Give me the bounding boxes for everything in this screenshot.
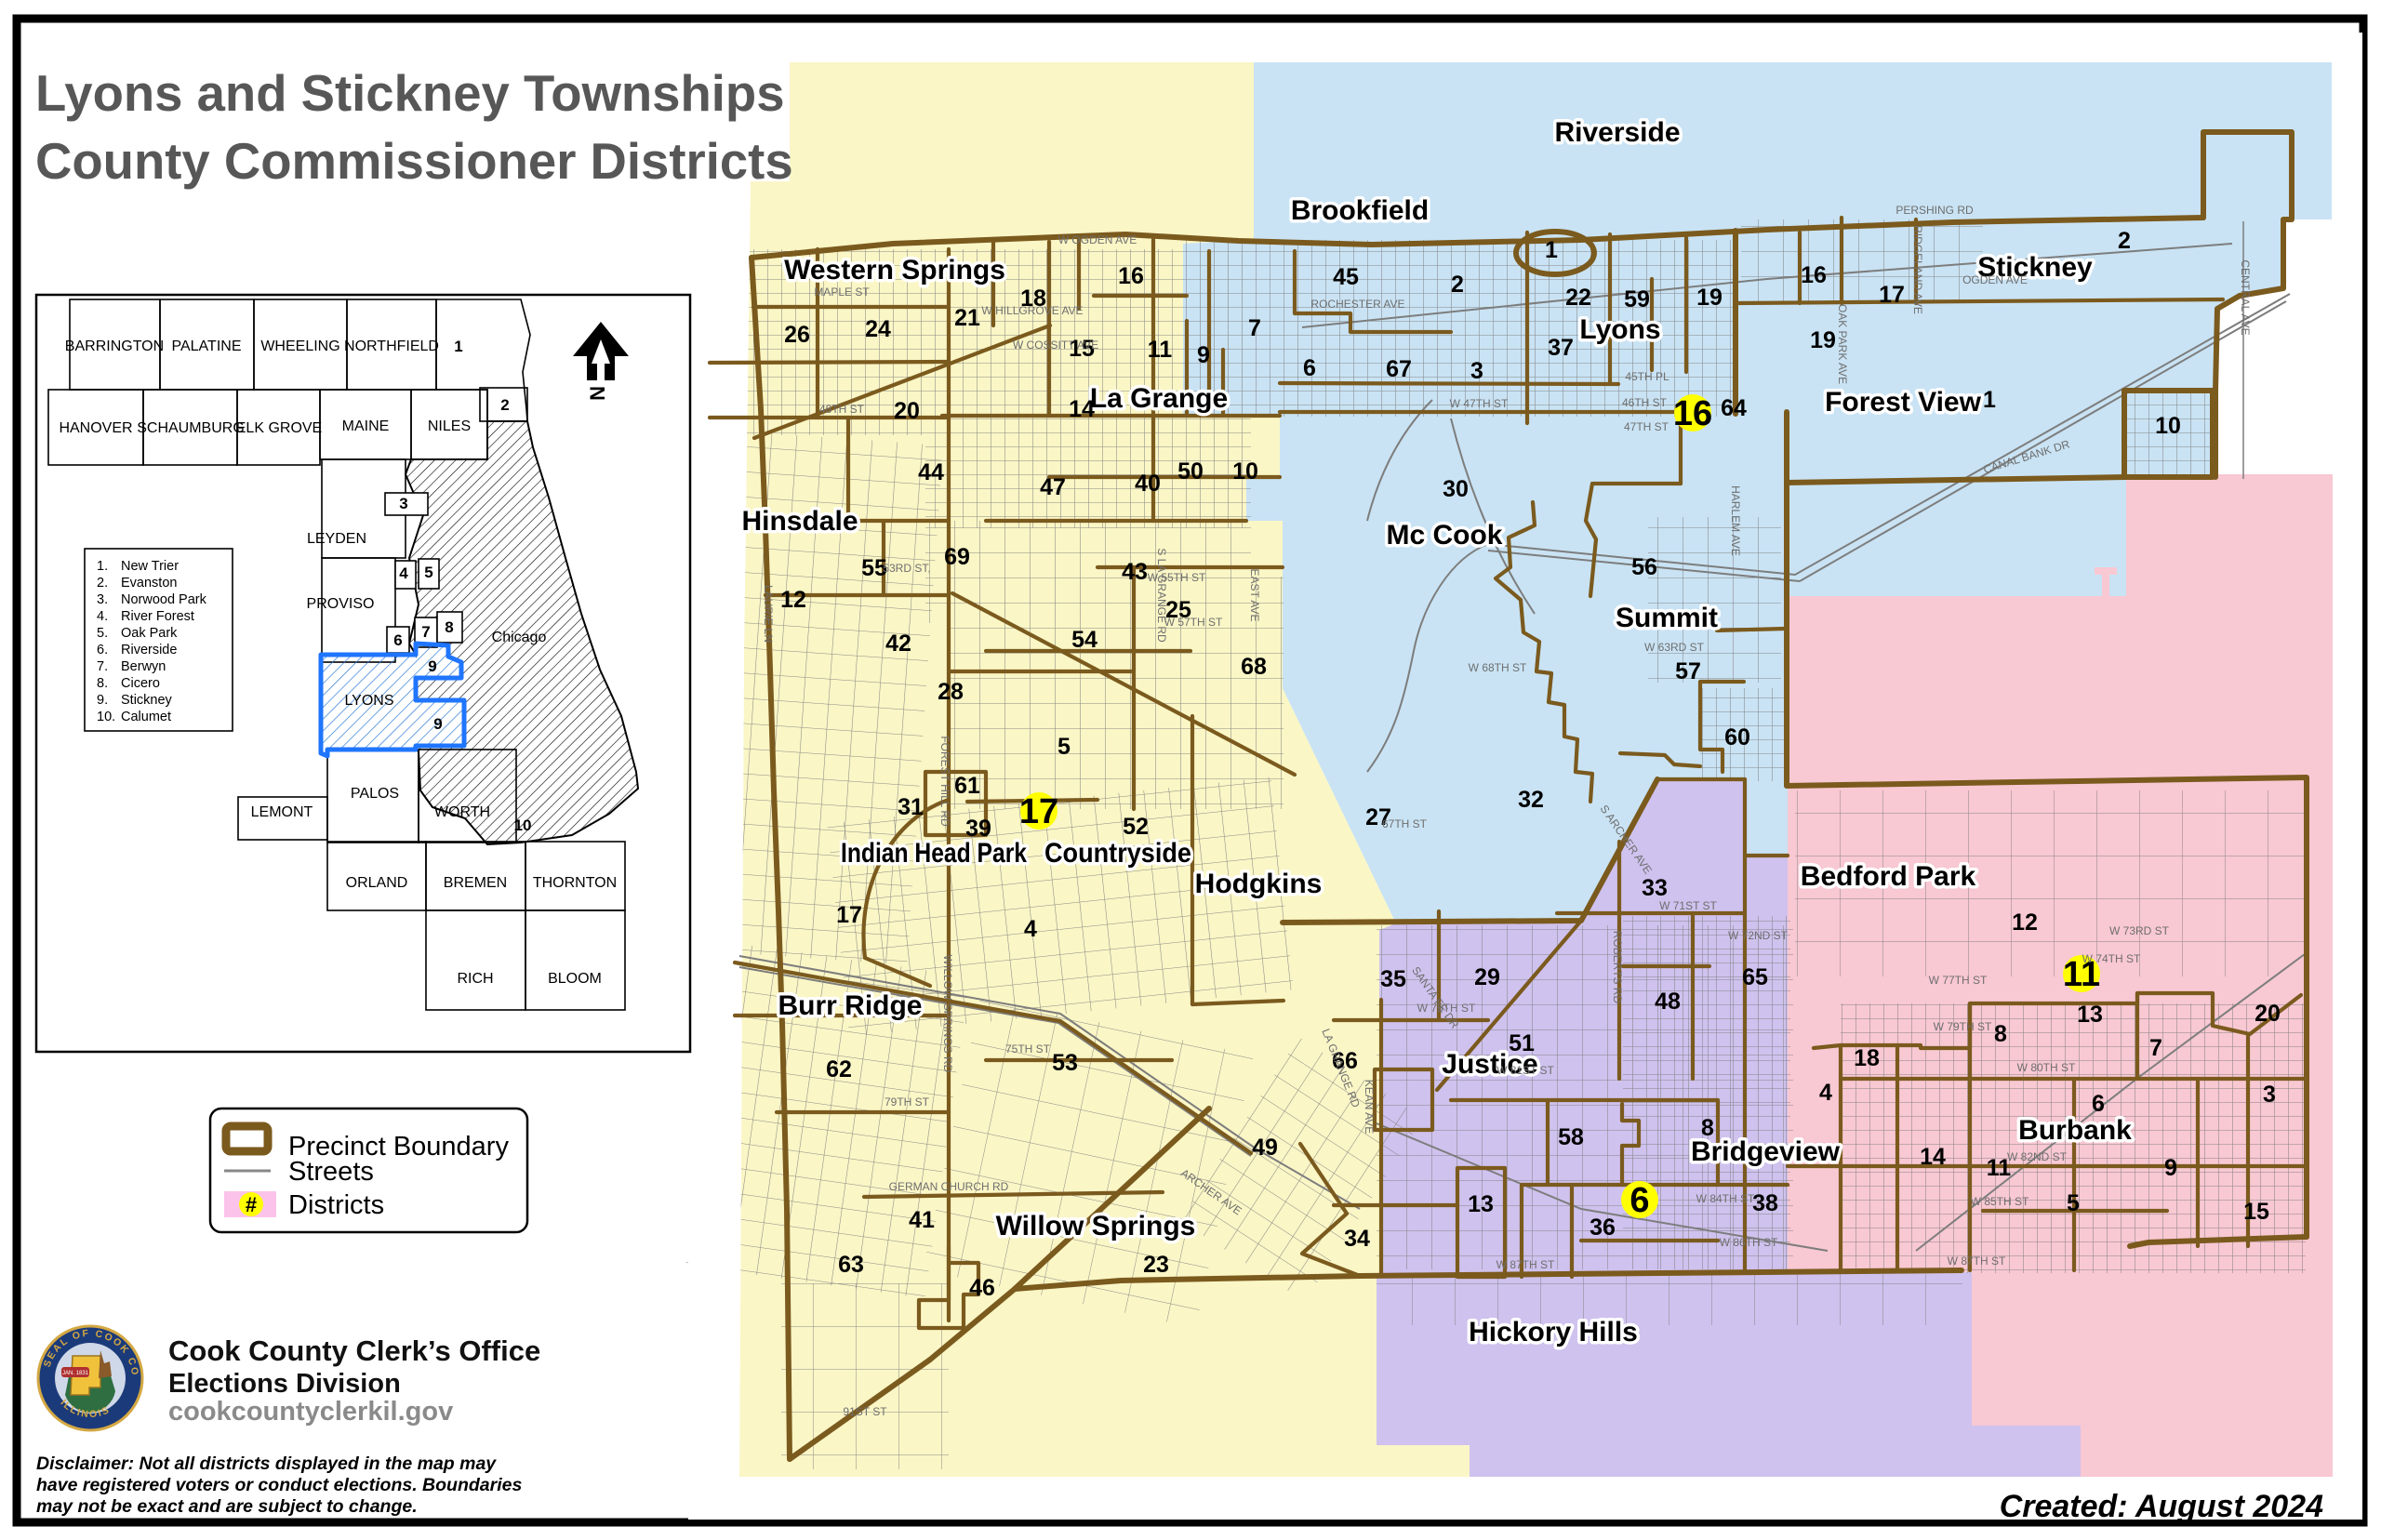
svg-text:3: 3	[399, 495, 407, 512]
svg-text:41: 41	[909, 1207, 935, 1233]
svg-text:3: 3	[1470, 358, 1483, 384]
svg-text:8.: 8.	[97, 676, 108, 691]
svg-text:FOREST HILL RD: FOREST HILL RD	[938, 736, 951, 827]
svg-text:Norwood Park: Norwood Park	[121, 592, 207, 607]
svg-text:LEYDEN: LEYDEN	[307, 531, 366, 547]
svg-text:BLOOM: BLOOM	[548, 971, 602, 987]
svg-text:Indian Head Park: Indian Head Park	[841, 838, 1027, 869]
svg-text:BREMEN: BREMEN	[444, 875, 507, 891]
svg-text:7.: 7.	[97, 659, 108, 674]
svg-text:59: 59	[1624, 286, 1650, 312]
svg-text:8: 8	[1701, 1115, 1714, 1141]
svg-text:W OGDEN AVE: W OGDEN AVE	[1058, 233, 1137, 246]
svg-text:CENTRAL AVE: CENTRAL AVE	[2239, 259, 2252, 335]
svg-text:7: 7	[2149, 1035, 2162, 1061]
svg-text:Elections Division: Elections Division	[168, 1369, 401, 1399]
svg-text:9: 9	[428, 657, 436, 675]
svg-text:KEAN AVE: KEAN AVE	[1363, 1080, 1376, 1134]
svg-text:47TH ST: 47TH ST	[1624, 420, 1669, 433]
svg-text:Chicago: Chicago	[492, 630, 547, 645]
svg-text:Disclaimer: Not all districts: Disclaimer: Not all districts displayed …	[36, 1454, 497, 1474]
svg-text:30: 30	[1443, 476, 1469, 502]
svg-text:LYONS: LYONS	[344, 693, 393, 709]
svg-text:20: 20	[2255, 1001, 2281, 1027]
svg-text:58: 58	[1558, 1124, 1584, 1150]
svg-text:NILES: NILES	[428, 418, 471, 434]
svg-text:W 68TH ST: W 68TH ST	[1469, 661, 1527, 674]
svg-text:4: 4	[1819, 1080, 1832, 1106]
svg-text:11: 11	[1148, 337, 1173, 363]
svg-text:Cook County Clerk’s Office: Cook County Clerk’s Office	[168, 1334, 540, 1367]
svg-text:Countryside: Countryside	[1044, 838, 1191, 869]
svg-text:17: 17	[1019, 792, 1058, 831]
svg-text:2.: 2.	[97, 576, 108, 591]
svg-text:43: 43	[1122, 559, 1148, 585]
svg-text:38: 38	[1752, 1190, 1778, 1216]
svg-text:44: 44	[918, 459, 944, 485]
svg-text:W COSSITT AVE: W COSSITT AVE	[1013, 339, 1098, 352]
svg-text:35: 35	[1380, 966, 1406, 992]
svg-text:34: 34	[1344, 1226, 1370, 1252]
svg-text:NORTHFIELD: NORTHFIELD	[344, 339, 439, 354]
svg-text:9: 9	[1197, 342, 1210, 368]
svg-text:45: 45	[1333, 264, 1359, 290]
svg-text:61: 61	[954, 773, 980, 799]
svg-text:Summit: Summit	[1616, 603, 1718, 633]
svg-text:Hinsdale: Hinsdale	[741, 506, 858, 537]
svg-text:W 47TH ST: W 47TH ST	[1450, 397, 1509, 410]
svg-text:Lyons: Lyons	[1579, 314, 1660, 345]
svg-text:9.: 9.	[97, 693, 108, 708]
svg-text:63: 63	[838, 1252, 864, 1278]
svg-text:47: 47	[1040, 474, 1066, 500]
svg-text:GERMAN CHURCH RD: GERMAN CHURCH RD	[889, 1180, 1009, 1193]
svg-text:14: 14	[1069, 396, 1095, 422]
svg-text:19: 19	[1810, 327, 1836, 353]
svg-text:BARRINGTON: BARRINGTON	[65, 339, 164, 354]
svg-text:LEMONT: LEMONT	[251, 804, 313, 820]
svg-text:57: 57	[1675, 658, 1701, 684]
svg-text:53: 53	[1052, 1050, 1078, 1076]
svg-text:Riverside: Riverside	[1554, 117, 1680, 148]
svg-text:48: 48	[1655, 989, 1681, 1015]
svg-text:Western Springs: Western Springs	[784, 255, 1005, 285]
svg-text:SCHAUMBURG: SCHAUMBURG	[137, 420, 245, 436]
svg-text:10.: 10.	[97, 710, 115, 724]
svg-text:20: 20	[894, 398, 920, 424]
svg-text:have registered voters or cond: have registered voters or conduct electi…	[36, 1475, 522, 1495]
svg-text:8: 8	[1994, 1021, 2007, 1047]
svg-text:4: 4	[1024, 916, 1037, 942]
svg-text:21: 21	[954, 305, 980, 331]
svg-text:Lyons and Stickney Townships: Lyons and Stickney Townships	[35, 65, 785, 122]
svg-text:W 87TH ST: W 87TH ST	[1948, 1255, 2006, 1268]
svg-text:1.: 1.	[97, 559, 108, 574]
svg-text:RIDGELAND AVE: RIDGELAND AVE	[1911, 225, 1924, 314]
svg-text:60: 60	[1724, 724, 1750, 750]
svg-text:W 81ST ST: W 81ST ST	[1496, 1064, 1554, 1077]
svg-text:cookcountyclerkil.gov: cookcountyclerkil.gov	[168, 1397, 453, 1427]
svg-text:Stickney: Stickney	[121, 693, 173, 708]
svg-text:6: 6	[1303, 355, 1316, 381]
svg-text:Brookfield: Brookfield	[1291, 195, 1429, 226]
svg-text:4: 4	[399, 564, 408, 582]
svg-text:W 57TH ST: W 57TH ST	[1164, 616, 1223, 629]
svg-text:5: 5	[2067, 1190, 2080, 1216]
svg-text:6: 6	[393, 631, 402, 649]
svg-text:39: 39	[965, 816, 991, 842]
svg-text:19: 19	[1696, 285, 1723, 311]
svg-text:6: 6	[2092, 1091, 2105, 1117]
svg-text:PROVISO: PROVISO	[307, 596, 375, 612]
svg-text:91ST ST: 91ST ST	[843, 1405, 887, 1418]
svg-text:W HILLGROVE AVE: W HILLGROVE AVE	[981, 304, 1083, 317]
svg-text:36: 36	[1590, 1215, 1616, 1241]
svg-text:3.: 3.	[97, 592, 108, 607]
svg-text:Riverside: Riverside	[121, 643, 177, 657]
svg-text:W 80TH ST: W 80TH ST	[2017, 1061, 2076, 1074]
svg-text:28: 28	[938, 679, 964, 705]
svg-text:2: 2	[2118, 228, 2131, 254]
svg-text:8: 8	[445, 618, 453, 636]
svg-text:9: 9	[433, 715, 442, 733]
svg-text:22: 22	[1565, 285, 1591, 311]
svg-text:6.: 6.	[97, 643, 108, 657]
svg-text:HARLEM AVE: HARLEM AVE	[1729, 485, 1742, 556]
svg-text:12: 12	[2012, 909, 2038, 936]
svg-text:PALOS: PALOS	[351, 786, 399, 802]
svg-text:9: 9	[2164, 1155, 2177, 1181]
svg-text:Created: August 2024: Created: August 2024	[2000, 1489, 2323, 1524]
svg-text:16: 16	[1801, 262, 1827, 288]
svg-text:PALATINE: PALATINE	[172, 339, 242, 354]
svg-text:48TH ST: 48TH ST	[819, 403, 865, 416]
svg-text:10: 10	[2155, 413, 2181, 439]
svg-text:45TH PL: 45TH PL	[1625, 370, 1669, 383]
svg-text:53RD ST,: 53RD ST,	[883, 562, 930, 575]
svg-text:69: 69	[944, 544, 970, 570]
svg-text:W 63RD ST: W 63RD ST	[1644, 641, 1705, 654]
svg-text:51: 51	[1509, 1030, 1535, 1056]
svg-text:#: #	[246, 1193, 257, 1216]
svg-text:Streets: Streets	[288, 1157, 374, 1187]
svg-text:37: 37	[1548, 335, 1574, 361]
svg-text:15: 15	[2243, 1199, 2269, 1225]
svg-text:N: N	[586, 386, 609, 401]
svg-text:County Commissioner Districts: County Commissioner Districts	[35, 133, 793, 190]
svg-text:18: 18	[1854, 1045, 1880, 1071]
svg-text:W 87TH ST: W 87TH ST	[1496, 1258, 1555, 1271]
svg-text:75TH ST: 75TH ST	[1005, 1042, 1051, 1055]
svg-text:Willow Springs: Willow Springs	[996, 1211, 1196, 1241]
svg-text:Evanston: Evanston	[121, 576, 177, 591]
svg-text:OGDEN AVE: OGDEN AVE	[1962, 273, 2028, 286]
svg-text:17: 17	[836, 902, 862, 928]
svg-text:64: 64	[1721, 395, 1747, 421]
svg-text:10: 10	[514, 816, 532, 834]
svg-text:2: 2	[1451, 272, 1464, 298]
svg-text:1: 1	[1545, 237, 1558, 263]
svg-text:W 85TH ST: W 85TH ST	[1971, 1195, 2029, 1208]
svg-text:New Trier: New Trier	[121, 559, 179, 574]
svg-text:Oak Park: Oak Park	[121, 626, 178, 641]
svg-text:17: 17	[1879, 282, 1905, 308]
svg-text:42: 42	[885, 631, 911, 657]
svg-text:LAURIE LN: LAURIE LN	[762, 585, 775, 643]
svg-text:10: 10	[1232, 458, 1258, 485]
svg-text:MAINE: MAINE	[342, 418, 390, 434]
svg-text:W 73RD ST: W 73RD ST	[2109, 924, 2170, 937]
svg-text:79TH ST: 79TH ST	[885, 1095, 930, 1109]
svg-text:ROBERTS RD: ROBERTS RD	[1611, 931, 1624, 1004]
svg-text:7: 7	[421, 623, 430, 641]
svg-text:32: 32	[1518, 787, 1544, 813]
svg-text:7: 7	[1248, 315, 1261, 341]
svg-text:56: 56	[1631, 554, 1657, 580]
svg-text:W 72ND ST: W 72ND ST	[1728, 929, 1789, 942]
svg-text:16: 16	[1673, 394, 1712, 433]
svg-text:1: 1	[1983, 387, 1996, 413]
svg-text:3: 3	[2263, 1082, 2276, 1108]
svg-text:Mc Cook: Mc Cook	[1386, 520, 1502, 551]
svg-text:W 84TH ST: W 84TH ST	[1696, 1192, 1755, 1205]
svg-text:RICH: RICH	[457, 971, 493, 987]
svg-text:29: 29	[1474, 964, 1500, 990]
svg-text:54: 54	[1071, 627, 1097, 653]
svg-text:26: 26	[784, 322, 810, 348]
svg-text:16: 16	[1118, 263, 1144, 289]
svg-text:Burbank: Burbank	[2018, 1115, 2132, 1146]
svg-text:S LA GRANGE RD: S LA GRANGE RD	[1155, 548, 1168, 643]
svg-text:2: 2	[500, 396, 509, 414]
svg-text:ORLAND: ORLAND	[346, 875, 408, 891]
svg-text:12: 12	[780, 587, 806, 613]
svg-text:THORNTON: THORNTON	[533, 875, 617, 891]
svg-text:ROCHESTER AVE: ROCHESTER AVE	[1310, 298, 1404, 311]
svg-text:1: 1	[454, 338, 462, 355]
svg-text:67: 67	[1386, 356, 1412, 382]
svg-text:62: 62	[826, 1056, 852, 1082]
svg-text:Forest View: Forest View	[1825, 387, 1982, 418]
svg-text:46: 46	[969, 1275, 995, 1301]
svg-text:33: 33	[1642, 875, 1668, 901]
svg-text:OAK PARK AVE: OAK PARK AVE	[1836, 304, 1849, 384]
svg-text:EAST AVE: EAST AVE	[1248, 569, 1261, 622]
svg-text:13: 13	[1468, 1191, 1494, 1217]
svg-text:PERSHING RD: PERSHING RD	[1895, 204, 1974, 217]
svg-text:MAPLE ST: MAPLE ST	[814, 285, 870, 299]
svg-text:W 71ST ST: W 71ST ST	[1659, 899, 1717, 912]
svg-text:Hodgkins: Hodgkins	[1195, 869, 1323, 899]
svg-text:24: 24	[865, 316, 891, 342]
svg-text:W 77TH ST: W 77TH ST	[1929, 974, 1988, 987]
svg-text:50: 50	[1177, 458, 1204, 485]
svg-text:4.: 4.	[97, 609, 108, 624]
svg-text:HANOVER: HANOVER	[59, 420, 132, 436]
svg-text:5: 5	[424, 564, 432, 581]
svg-text:Hickory Hills: Hickory Hills	[1469, 1317, 1638, 1347]
svg-text:5: 5	[1057, 734, 1071, 760]
svg-text:Bedford Park: Bedford Park	[1801, 861, 1976, 892]
svg-text:40: 40	[1135, 471, 1161, 497]
svg-text:49: 49	[1252, 1135, 1278, 1161]
svg-text:68: 68	[1241, 654, 1267, 680]
svg-text:5.: 5.	[97, 626, 108, 641]
svg-text:6: 6	[1629, 1181, 1649, 1220]
svg-text:Burr Ridge: Burr Ridge	[778, 990, 922, 1021]
svg-text:may not be exact and are subje: may not be exact and are subject to chan…	[36, 1496, 418, 1517]
svg-text:W 86TH ST: W 86TH ST	[1720, 1236, 1778, 1249]
svg-text:Cicero: Cicero	[121, 676, 160, 691]
svg-text:23: 23	[1143, 1252, 1169, 1278]
svg-text:Districts: Districts	[288, 1190, 384, 1220]
svg-text:River Forest: River Forest	[121, 609, 194, 624]
svg-text:W 82ND ST: W 82ND ST	[2007, 1150, 2068, 1163]
svg-text:JAN. 1831: JAN. 1831	[62, 1371, 89, 1376]
svg-text:WORTH: WORTH	[434, 804, 490, 820]
svg-text:13: 13	[2077, 1002, 2103, 1028]
svg-text:La Grange: La Grange	[1090, 383, 1228, 414]
svg-text:WILLOW SPRINGS RD: WILLOW SPRINGS RD	[941, 955, 954, 1073]
svg-text:W 79TH ST: W 79TH ST	[1934, 1020, 1992, 1033]
svg-text:W 74TH ST: W 74TH ST	[2082, 952, 2141, 965]
svg-text:65: 65	[1742, 964, 1768, 990]
svg-text:14: 14	[1920, 1144, 1946, 1170]
svg-text:46TH ST: 46TH ST	[1622, 396, 1668, 409]
svg-text:67TH ST: 67TH ST	[1382, 817, 1428, 830]
svg-text:Calumet: Calumet	[121, 710, 171, 724]
svg-text:ELK GROVE: ELK GROVE	[236, 420, 322, 436]
svg-text:WHEELING: WHEELING	[260, 339, 339, 354]
svg-text:Berwyn: Berwyn	[121, 659, 166, 674]
svg-text:31: 31	[898, 794, 924, 820]
svg-text:52: 52	[1123, 814, 1149, 840]
